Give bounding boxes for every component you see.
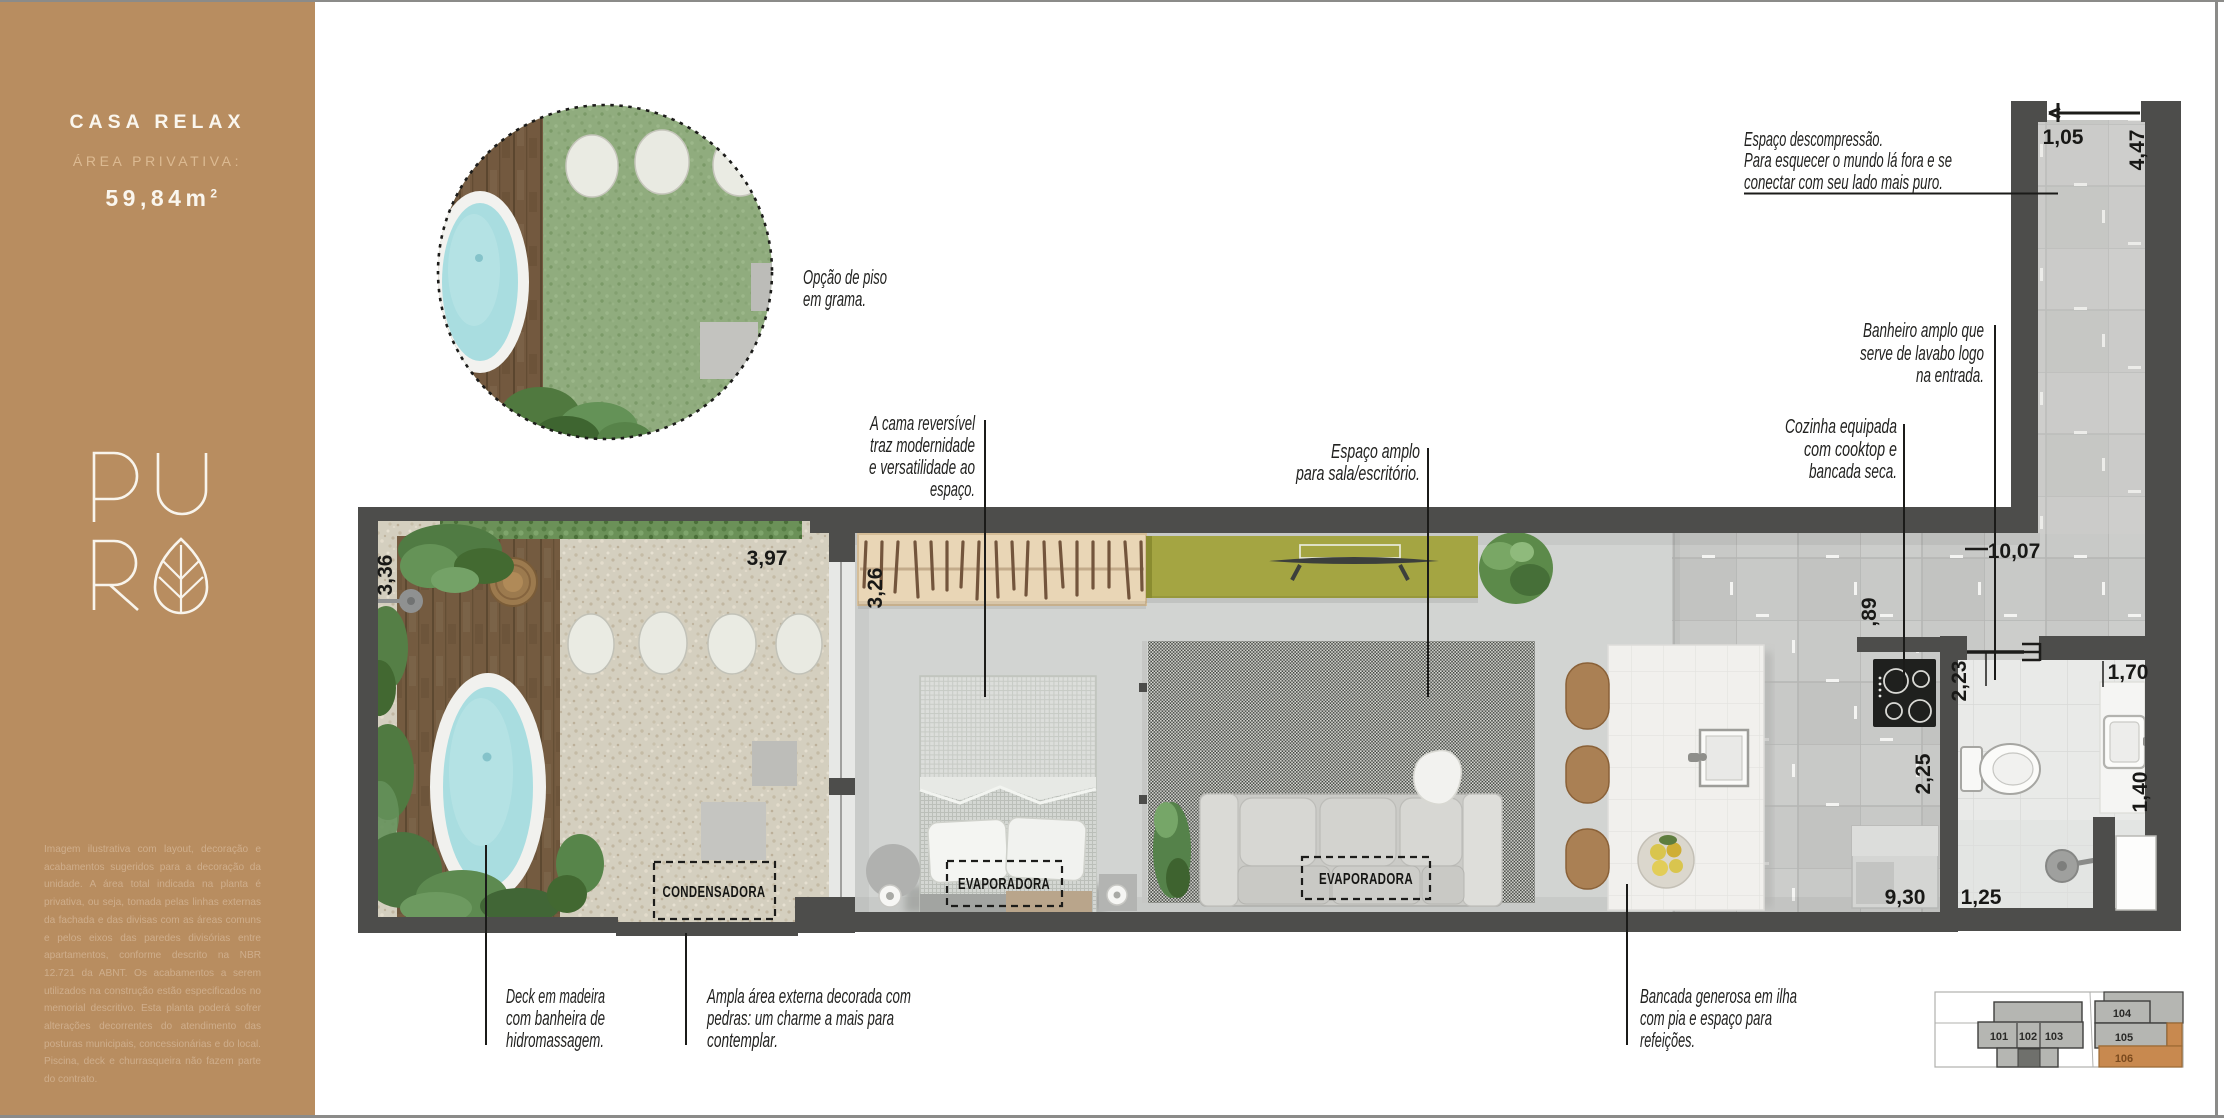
svg-text:Para esquecer o mundo lá fora: Para esquecer o mundo lá fora e se	[1744, 150, 1952, 172]
svg-text:hidromassagem.: hidromassagem.	[506, 1030, 604, 1052]
svg-text:4,47: 4,47	[2126, 130, 2149, 171]
svg-text:103: 103	[2045, 1031, 2063, 1043]
svg-text:para sala/escritório.: para sala/escritório.	[1295, 463, 1420, 485]
svg-text:2,23: 2,23	[1948, 661, 1971, 702]
svg-text:refeições.: refeições.	[1640, 1030, 1695, 1052]
svg-text:EVAPORADORA: EVAPORADORA	[958, 876, 1050, 893]
svg-text:1,25: 1,25	[1961, 886, 2002, 909]
svg-text:Ampla área externa decorada co: Ampla área externa decorada com	[706, 986, 911, 1008]
svg-text:1,40: 1,40	[2129, 772, 2152, 813]
svg-text:conectar com seu lado mais pur: conectar com seu lado mais puro.	[1744, 172, 1943, 194]
svg-text:com pia e espaço para: com pia e espaço para	[1640, 1008, 1772, 1030]
svg-text:contemplar.: contemplar.	[707, 1030, 778, 1052]
svg-text:com cooktop e: com cooktop e	[1804, 439, 1897, 461]
svg-text:Cozinha equipada: Cozinha equipada	[1785, 416, 1897, 438]
svg-text:104: 104	[2113, 1008, 2132, 1020]
svg-text:Banheiro amplo que: Banheiro amplo que	[1863, 320, 1984, 342]
svg-text:serve de lavabo logo: serve de lavabo logo	[1860, 343, 1984, 365]
svg-text:CONDENSADORA: CONDENSADORA	[663, 884, 766, 901]
svg-text:Opção de piso: Opção de piso	[803, 267, 887, 289]
svg-text:3,26: 3,26	[864, 568, 887, 609]
svg-text:bancada seca.: bancada seca.	[1809, 461, 1897, 483]
svg-text:1,05: 1,05	[2043, 126, 2084, 149]
svg-text:Espaço descompressão.: Espaço descompressão.	[1744, 129, 1883, 151]
svg-text:A cama reversível: A cama reversível	[869, 413, 975, 435]
svg-text:,89: ,89	[1858, 597, 1881, 626]
svg-text:traz modernidade: traz modernidade	[870, 435, 975, 457]
svg-text:em grama.: em grama.	[803, 289, 866, 311]
svg-text:3,36: 3,36	[374, 555, 397, 596]
svg-text:101: 101	[1990, 1031, 2008, 1043]
svg-text:Bancada generosa em ilha: Bancada generosa em ilha	[1640, 986, 1797, 1008]
svg-text:Deck em madeira: Deck em madeira	[506, 986, 605, 1008]
svg-text:102: 102	[2019, 1031, 2037, 1043]
svg-text:106: 106	[2115, 1053, 2133, 1065]
svg-text:com banheira de: com banheira de	[506, 1008, 605, 1030]
svg-text:EVAPORADORA: EVAPORADORA	[1319, 871, 1413, 888]
svg-text:na entrada.: na entrada.	[1916, 365, 1984, 387]
svg-text:1,70: 1,70	[2108, 661, 2149, 684]
svg-text:pedras: um charme a mais para: pedras: um charme a mais para	[706, 1008, 894, 1030]
svg-text:Espaço amplo: Espaço amplo	[1331, 441, 1420, 463]
svg-text:9,30: 9,30	[1885, 886, 1926, 909]
svg-text:105: 105	[2115, 1032, 2133, 1044]
svg-text:e versatilidade ao: e versatilidade ao	[869, 457, 975, 479]
svg-text:espaço.: espaço.	[930, 479, 975, 501]
svg-text:3,97: 3,97	[747, 547, 788, 570]
svg-text:2,25: 2,25	[1912, 753, 1935, 794]
